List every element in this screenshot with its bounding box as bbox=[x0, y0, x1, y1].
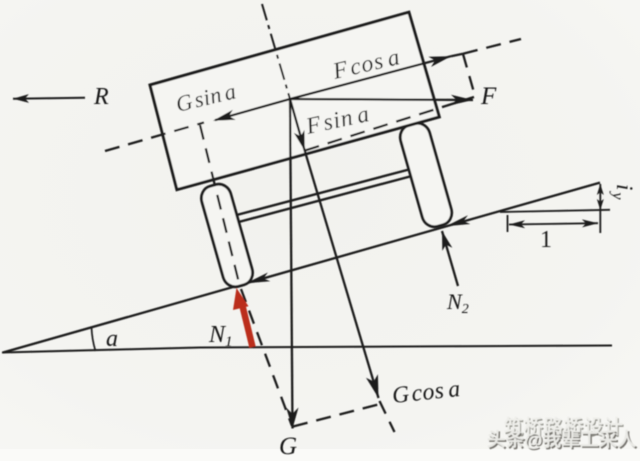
svg-text:1: 1 bbox=[540, 227, 552, 253]
svg-text:头条@我辈工采人: 头条@我辈工采人 bbox=[487, 429, 636, 450]
svg-text:R: R bbox=[93, 84, 109, 110]
svg-text:a: a bbox=[106, 326, 118, 352]
svg-text:F: F bbox=[480, 83, 497, 110]
svg-text:G: G bbox=[279, 433, 297, 460]
